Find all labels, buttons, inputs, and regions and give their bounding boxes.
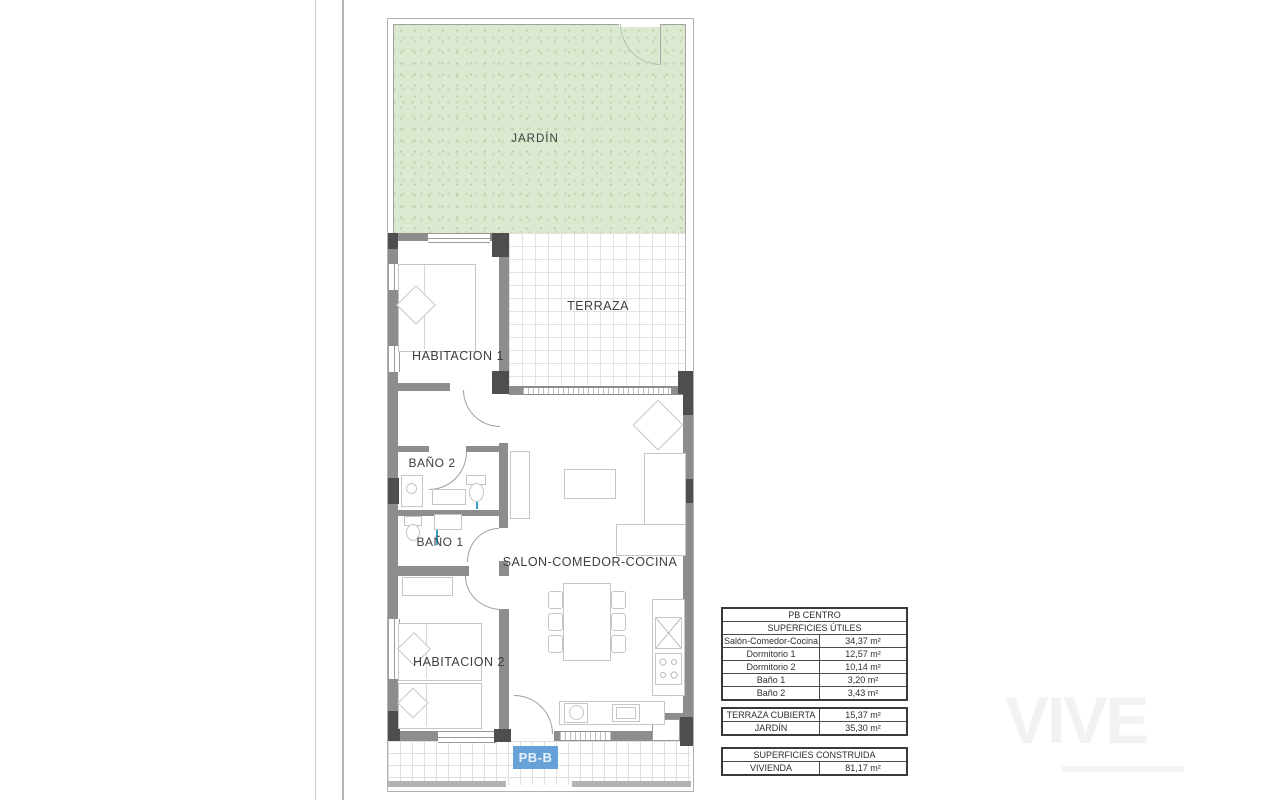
table-row: Baño 1 3,20 m² [723,673,906,686]
exterior-areas-table: TERRAZA CUBIERTA 15,37 m² JARDÍN 35,30 m… [721,707,908,736]
dining-chair [548,635,563,653]
table-row: Salón-Comedor-Cocina 34,37 m² [723,634,906,647]
row-value: 15,37 m² [820,709,906,721]
cooktop [655,653,682,685]
room-label-salon: SALON-COMEDOR-COCINA [503,555,678,569]
wall-habitacion2-right [499,609,509,741]
coffee-table [564,469,616,499]
room-label-habitacion2: HABITACION 2 [413,655,505,669]
dining-chair [611,635,626,653]
brand-watermark-tagline [1062,766,1184,772]
row-label: VIVIENDA [723,762,820,774]
wall-habitacion1-bottom [388,383,450,391]
wall-bano2-top [466,446,499,452]
door-arc-habitacion1 [463,390,500,427]
room-label-bano1: BAÑO 1 [416,535,463,549]
sink-vanity [432,489,466,505]
row-value: 3,43 m² [820,687,906,699]
row-value: 81,17 m² [820,762,906,774]
kitchen-sink-basin [616,707,636,719]
room-label-bano2: BAÑO 2 [408,456,455,470]
window-habitacion2-bottom [438,731,496,743]
table-row: VIVIENDA 81,17 m² [723,761,906,774]
washer-drum [569,705,584,720]
row-value: 34,37 m² [820,635,906,647]
door-arc-habitacion2 [465,576,502,610]
wardrobe [402,577,453,596]
table-subtitle: SUPERFICIES ÚTILES [723,621,906,634]
row-label: Baño 1 [723,674,820,686]
dining-chair [548,613,563,631]
row-label: TERRAZA CUBIERTA [723,709,820,721]
sliding-door-salon-bottom [560,731,611,741]
window-habitacion1-top [428,233,490,243]
table-row: Baño 2 3,43 m² [723,686,906,699]
tv-bench [510,451,530,519]
armchair [633,400,684,451]
room-label-habitacion1: HABITACION 1 [412,349,504,363]
table-row: Dormitorio 1 12,57 m² [723,647,906,660]
built-areas-table: SUPERFICIES CONSTRUIDA VIVIENDA 81,17 m² [721,747,908,776]
row-value: 12,57 m² [820,648,906,660]
dining-chair [611,613,626,631]
floor-plan: JARDÍN TERRAZA [387,18,694,792]
dining-chair [611,591,626,609]
brand-watermark: VIVE [1005,682,1147,758]
useful-areas-table: PB CENTRO SUPERFICIES ÚTILES Salón-Comed… [721,607,908,701]
door-arc-entrance [514,695,553,734]
table-title: SUPERFICIES CONSTRUIDA [723,749,906,761]
row-value: 3,20 m² [820,674,906,686]
shower-drain [406,483,417,494]
table-row: TERRAZA CUBIERTA 15,37 m² [723,709,906,721]
row-label: Dormitorio 1 [723,648,820,660]
door-arc-bano1 [467,528,499,562]
pillar [388,233,398,249]
pillar [683,391,693,415]
pillar [494,729,511,742]
dining-chair [548,591,563,609]
row-label: Salón-Comedor-Cocina [723,635,820,647]
table-title: PB CENTRO [723,609,906,621]
row-value: 10,14 m² [820,661,906,673]
row-value: 35,30 m² [820,722,906,734]
front-fence-left [388,781,506,787]
room-label-terraza: TERRAZA [567,299,629,313]
fridge [655,617,682,649]
wall-hab1-terrace-divider [499,233,509,394]
dining-table [563,583,611,661]
sliding-door-terrace [523,387,671,395]
front-fence-right [572,781,691,787]
table-row: Dormitorio 2 10,14 m² [723,660,906,673]
plot-boundary-line [315,0,316,800]
sink-vanity [434,514,462,530]
wall-top [398,233,428,241]
row-label: Dormitorio 2 [723,661,820,673]
pillar [388,478,399,504]
table-row: JARDÍN 35,30 m² [723,721,906,734]
wall-habitacion2-top [388,566,469,576]
unit-label: PB-B [513,746,558,769]
plot-boundary-line [342,0,344,800]
pillar [492,233,509,257]
room-label-jardin: JARDÍN [511,133,559,145]
row-label: Baño 2 [723,687,820,699]
sofa-chaise [616,524,686,556]
pillar [680,717,693,746]
sofa [644,453,686,530]
wall-bano2-top [398,446,429,452]
row-label: JARDÍN [723,722,820,734]
area-tables: PB CENTRO SUPERFICIES ÚTILES Salón-Comed… [721,607,908,776]
toilet-bowl [469,483,484,502]
